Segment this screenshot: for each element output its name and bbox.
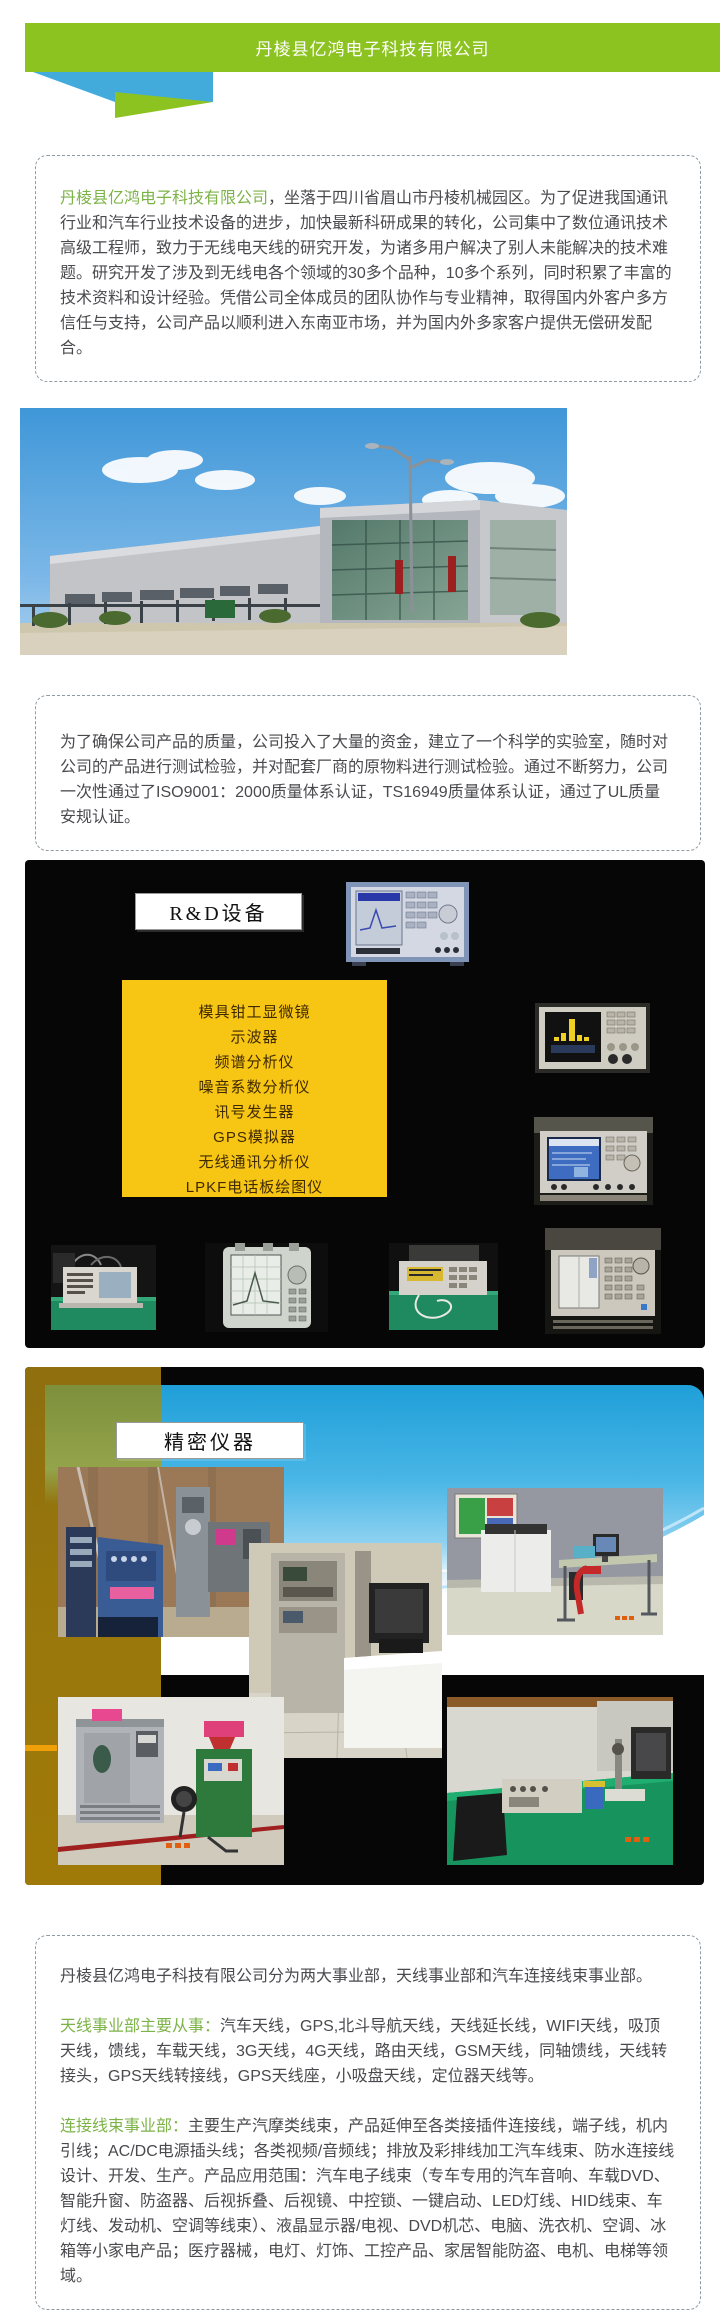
harness-division-text: 主要生产汽摩类线束，产品延伸至各类接插件连接线，端子线，机内引线；AC/DC电源…: [60, 2118, 674, 2285]
spectrum-analyzer-photo: [535, 1003, 650, 1073]
quality-text: 为了确保公司产品的质量，公司投入了大量的资金，建立了一个科学的实验室，随时对公司…: [60, 734, 668, 826]
bench-instrument-photo-1: [51, 1245, 156, 1330]
precision-instruments-slide[interactable]: 精密仪器: [25, 1367, 704, 1885]
company-intro-text: ，坐落于四川省眉山市丹棱机械园区。为了促进我国通讯行业和汽车行业技术设备的进步，…: [60, 190, 672, 357]
precision-slide-label-text: 精密仪器: [164, 1426, 256, 1455]
article-page: 丹棱县亿鸿电子科技有限公司 丹棱县亿鸿电子科技有限公司，坐落于四川省眉山市丹棱机…: [0, 0, 720, 2318]
company-intro-box: 丹棱县亿鸿电子科技有限公司，坐落于四川省眉山市丹棱机械园区。为了促进我国通讯行业…: [35, 155, 701, 382]
radio-tester-photo: [338, 878, 477, 968]
equipment-item: 无线通讯分析仪: [122, 1150, 387, 1175]
page-title: 丹棱县亿鸿电子科技有限公司: [256, 35, 490, 60]
equipment-item: GPS模拟器: [122, 1125, 387, 1150]
equipment-item: 示波器: [122, 1025, 387, 1050]
rd-equipment-slide[interactable]: R&D设备 模具钳工显微镜示波器频谱分析仪噪音系: [25, 860, 705, 1348]
quality-box: 为了确保公司产品的质量，公司投入了大量的资金，建立了一个科学的实验室，随时对公司…: [35, 695, 701, 851]
equipment-item: 频谱分析仪: [122, 1050, 387, 1075]
portable-analyzer-photo: [205, 1243, 328, 1332]
network-analyzer-photo: [534, 1117, 653, 1205]
precision-slide-label: 精密仪器: [116, 1422, 304, 1459]
company-name-highlight: 丹棱县亿鸿电子科技有限公司: [60, 190, 268, 207]
rd-slide-label: R&D设备: [135, 893, 302, 930]
harness-division-paragraph: 连接线束事业部：主要生产汽摩类线束，产品延伸至各类接插件连接线，端子线，机内引线…: [60, 2114, 676, 2289]
signal-generator-photo: [389, 1243, 498, 1330]
divisions-box: 丹棱县亿鸿电子科技有限公司分为两大事业部，天线事业部和汽车连接线束事业部。 天线…: [35, 1935, 701, 2310]
rd-equipment-list: 模具钳工显微镜示波器频谱分析仪噪音系数分析仪讯号发生器GPS模拟器无线通讯分析仪…: [122, 980, 387, 1197]
equipment-item: LPKF电话板绘图仪: [122, 1175, 387, 1200]
computer-room-photo: [447, 1488, 663, 1635]
test-set-photo: [545, 1228, 661, 1334]
header-banner: 丹棱县亿鸿电子科技有限公司: [25, 23, 720, 72]
workbench-photo: [447, 1697, 673, 1865]
gold-accent-decoration: [25, 1745, 57, 1751]
divisions-overview: 丹棱县亿鸿电子科技有限公司分为两大事业部，天线事业部和汽车连接线束事业部。: [60, 1964, 676, 1989]
environment-chamber-photo: [58, 1697, 284, 1865]
harness-division-label: 连接线束事业部：: [60, 2118, 188, 2135]
antenna-division-label: 天线事业部主要从事：: [60, 2018, 220, 2035]
equipment-item: 噪音系数分析仪: [122, 1075, 387, 1100]
antenna-division-paragraph: 天线事业部主要从事：汽车天线，GPS,北斗导航天线，天线延长线，WIFI天线，吸…: [60, 2014, 676, 2089]
equipment-item: 模具钳工显微镜: [122, 1000, 387, 1025]
equipment-item: 讯号发生器: [122, 1100, 387, 1125]
ribbon-decoration-icon: [30, 72, 220, 120]
factory-building-photo[interactable]: [20, 408, 567, 655]
rd-slide-label-text: R&D设备: [169, 897, 267, 926]
